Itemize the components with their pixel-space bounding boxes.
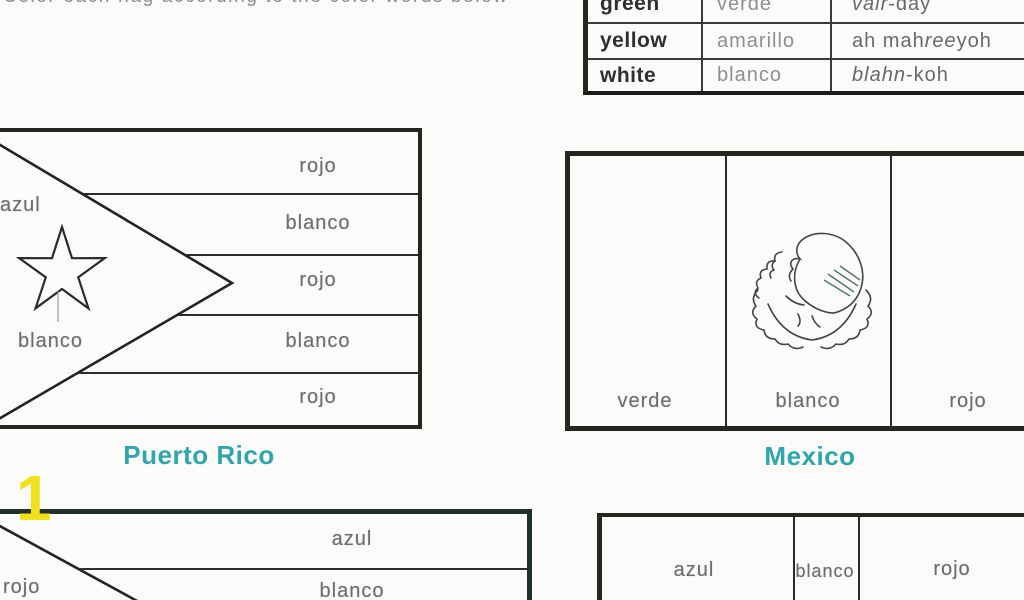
stripe-label: blanco xyxy=(320,580,385,600)
worksheet-page: Color each flag according to the color w… xyxy=(0,0,1024,600)
triangle-label: rojo xyxy=(3,576,40,599)
color-pronunciation: blahn-koh xyxy=(832,60,1024,91)
flag-puerto-rico: rojo blanco rojo blanco rojo azul blanco xyxy=(0,128,422,429)
column-label: verde xyxy=(617,390,672,413)
column-label: blanco xyxy=(776,390,841,413)
flag-caption-puerto-rico: Puerto Rico xyxy=(123,440,274,471)
stripe-label: azul xyxy=(332,528,373,551)
color-spanish: verde xyxy=(703,0,832,22)
color-reference-table: green verde vair-day yellow amarillo ah … xyxy=(583,0,1024,95)
stripe-label: rojo xyxy=(299,386,336,409)
color-spanish: blanco xyxy=(703,60,832,91)
color-english: green xyxy=(588,0,703,22)
column-label: rojo xyxy=(933,558,970,581)
number-1-marker: 1 xyxy=(16,472,52,524)
flag-mexico: verde blanco rojo xyxy=(565,151,1024,431)
color-english: yellow xyxy=(588,24,703,58)
flag-bottom-left: azul blanco rojo xyxy=(0,509,532,600)
color-pronunciation: ah mah ree yoh xyxy=(832,24,1024,58)
triangle-label: azul xyxy=(0,194,41,217)
color-english: white xyxy=(588,60,703,91)
stripe-label: rojo xyxy=(299,269,336,292)
table-row: white blanco blahn-koh xyxy=(588,60,1024,91)
column-label: blanco xyxy=(795,561,854,582)
flag-bottom-right: azul blanco rojo xyxy=(597,513,1024,600)
column-divider xyxy=(725,156,727,426)
color-pronunciation: vair-day xyxy=(832,0,1024,22)
stripe-label: blanco xyxy=(286,330,351,353)
column-divider xyxy=(858,517,860,600)
color-spanish: amarillo xyxy=(703,24,832,58)
star-label: blanco xyxy=(18,330,83,353)
stripe-label: blanco xyxy=(286,212,351,235)
table-row: green verde vair-day xyxy=(588,0,1024,24)
triangle-outline xyxy=(0,514,527,600)
column-label: azul xyxy=(674,559,715,582)
triangle-and-star-outline xyxy=(0,132,418,425)
clipped-directions-text: Color each flag according to the color w… xyxy=(3,0,509,6)
stripe-label: rojo xyxy=(299,155,336,178)
eagle-emblem xyxy=(742,230,882,356)
column-label: rojo xyxy=(949,390,986,413)
flag-caption-mexico: Mexico xyxy=(764,441,855,472)
column-divider xyxy=(890,156,892,426)
column-divider xyxy=(793,517,795,600)
table-row: yellow amarillo ah mah ree yoh xyxy=(588,24,1024,60)
